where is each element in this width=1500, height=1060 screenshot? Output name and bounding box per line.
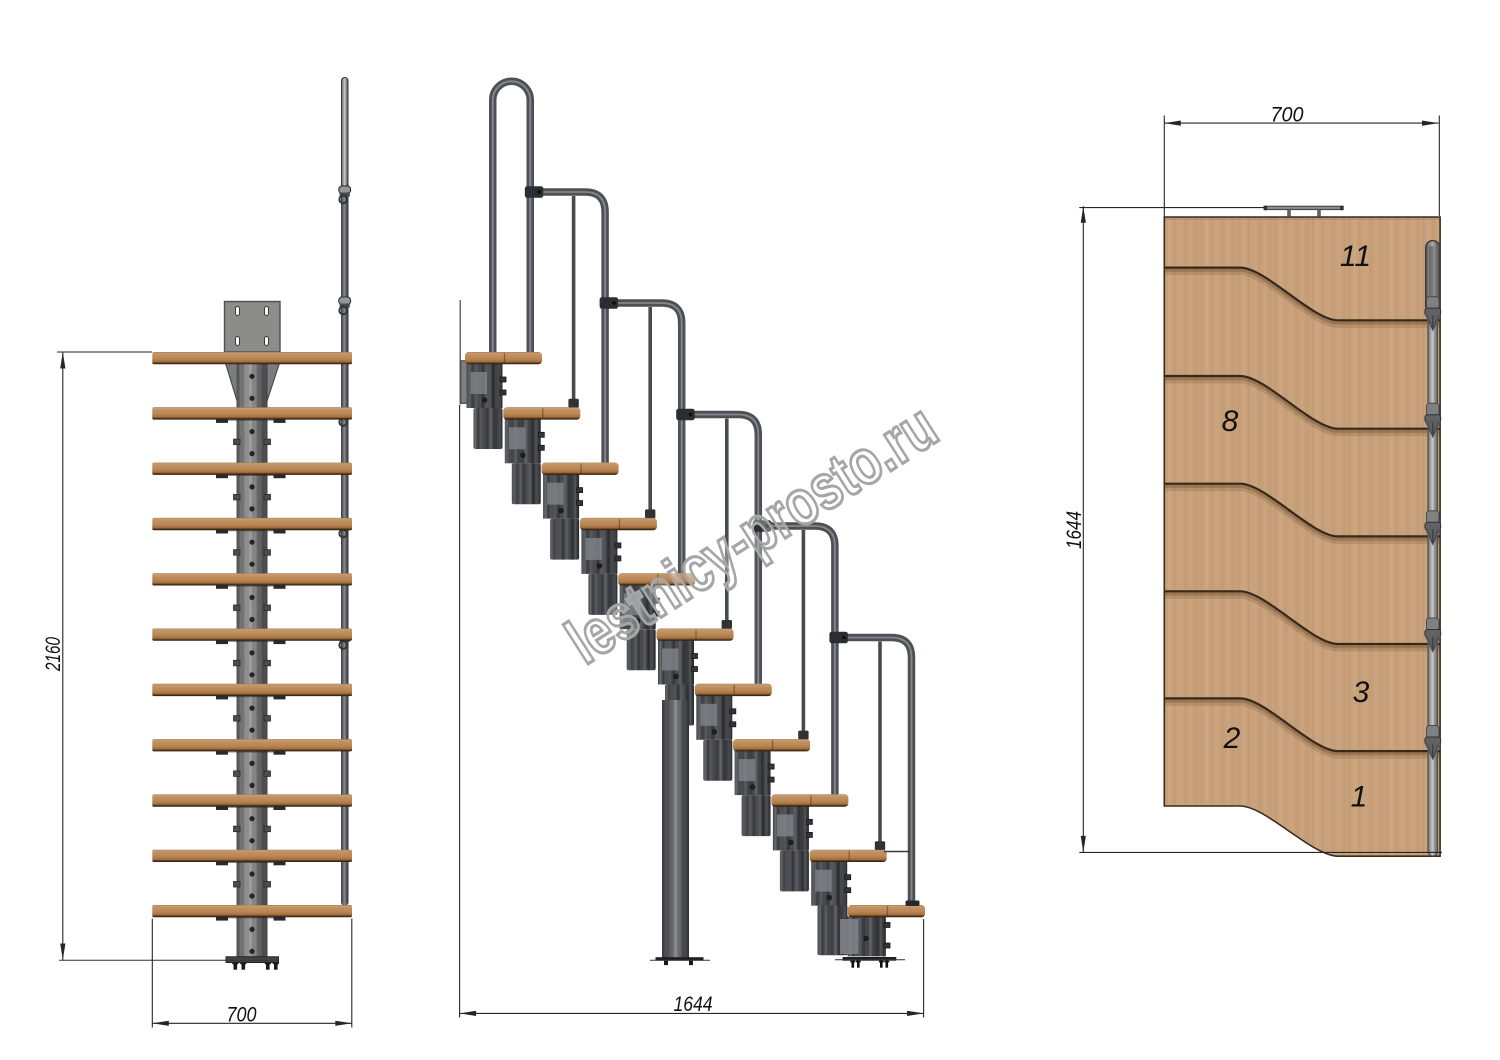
svg-text:1: 1 — [1351, 781, 1368, 814]
svg-text:2160: 2160 — [42, 637, 65, 672]
svg-text:2: 2 — [1223, 722, 1241, 755]
svg-text:8: 8 — [1222, 405, 1239, 438]
svg-text:1644: 1644 — [1063, 511, 1086, 549]
svg-text:11: 11 — [1340, 240, 1371, 273]
svg-text:1644: 1644 — [674, 993, 713, 1016]
svg-text:3: 3 — [1353, 676, 1370, 709]
svg-text:700: 700 — [227, 1004, 257, 1027]
svg-text:700: 700 — [1271, 104, 1304, 127]
